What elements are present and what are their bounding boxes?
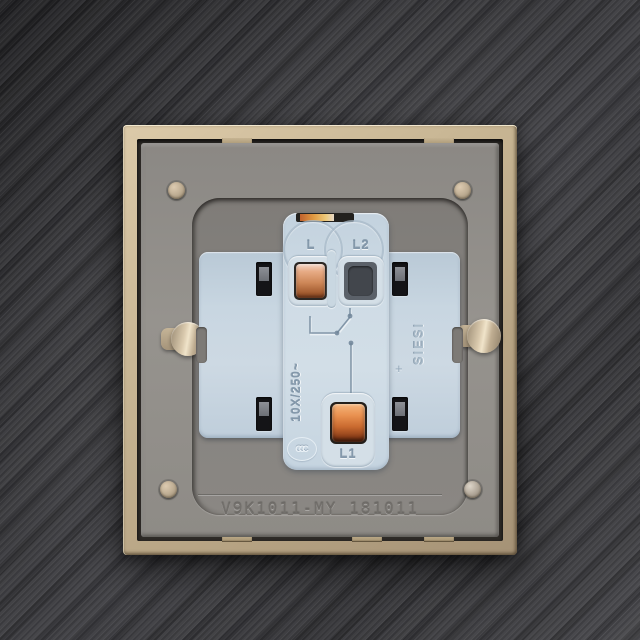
empty-terminal-cavity (348, 266, 373, 296)
slot-metal-tab (395, 402, 405, 416)
keyhole-mount-right-icon (457, 314, 501, 358)
terminal-label-L1: L1 (334, 446, 362, 461)
slot-metal-tab (259, 402, 269, 416)
terminal-label-L: L (288, 237, 334, 252)
plate-groove-line (198, 494, 442, 495)
module-edge-notch (196, 327, 207, 363)
mounting-slot (392, 397, 408, 431)
terminal-L1-hole (330, 402, 367, 444)
slot-metal-tab (259, 267, 269, 281)
corner-rivet-icon (464, 481, 481, 498)
terminal-L2-hole (344, 262, 377, 300)
brand-embossed-text: SIESI (401, 303, 437, 383)
slot-metal-tab (395, 267, 405, 281)
terminal-label-L2: L2 (338, 237, 384, 252)
ccc-certification-icon: CCC (287, 437, 317, 461)
terminal-L2 (338, 256, 384, 306)
switch-mechanism-housing: L L2 (283, 213, 389, 470)
terminal-L-hole (294, 262, 327, 300)
mounting-slot (256, 262, 272, 296)
wire-release-lever (327, 250, 336, 308)
brushed-metal-backdrop: L L2 (0, 0, 640, 640)
module-edge-notch (452, 327, 463, 363)
corner-rivet-icon (160, 481, 177, 498)
model-code-engraving: V9K1011-MY 181011 (183, 499, 457, 518)
copper-wire-contact (332, 404, 365, 442)
corner-rivet-icon (454, 182, 471, 199)
wall-switch-back-panel: L L2 (123, 125, 517, 555)
mounting-slot (256, 397, 272, 431)
mounting-slot (392, 262, 408, 296)
plus-mold-mark: + (395, 361, 403, 376)
copper-contact (296, 264, 325, 298)
keyhole-cap (467, 319, 501, 353)
corner-rivet-icon (168, 182, 185, 199)
rating-marking: 10X/250~ (278, 335, 314, 448)
